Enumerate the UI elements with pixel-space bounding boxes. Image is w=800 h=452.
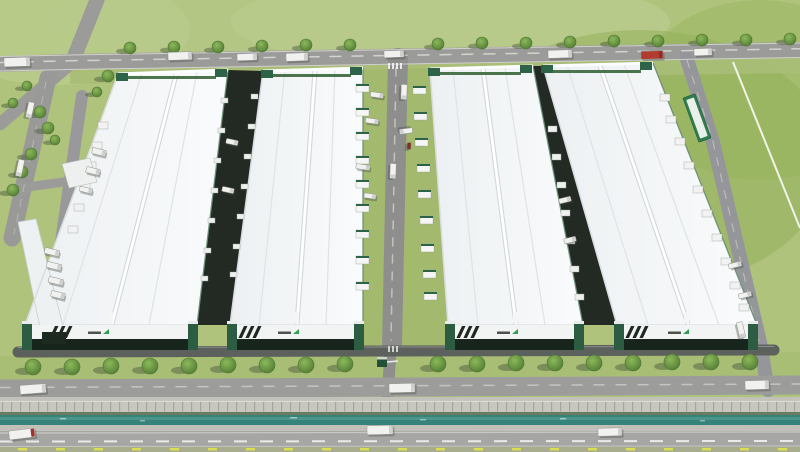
- tree: [298, 357, 314, 373]
- corner-towers: [748, 321, 758, 350]
- dock-canopy-trim: [421, 244, 434, 246]
- tower-caps: [748, 321, 758, 324]
- truck: [388, 163, 397, 180]
- yellow-edge-dashes: [626, 448, 635, 450]
- wall-posts: [605, 402, 606, 412]
- logo-text-bar: [668, 332, 681, 335]
- dock-canopy-trim: [356, 132, 369, 134]
- tree: [337, 356, 353, 372]
- canal-sparkles: [700, 420, 705, 421]
- dock-canopy: [211, 188, 218, 193]
- wall-posts: [119, 402, 120, 412]
- logo-text-bar: [497, 332, 510, 335]
- truck: [286, 53, 310, 64]
- dock-canopy: [221, 98, 228, 103]
- wall-posts: [776, 402, 777, 412]
- wall-posts: [2, 402, 3, 412]
- yellow-edge-dashes: [778, 448, 787, 450]
- truck: [745, 380, 771, 391]
- dock-canopy-trim: [356, 256, 369, 258]
- tree: [608, 35, 620, 47]
- wall-posts: [668, 402, 669, 412]
- dock-canopy: [233, 244, 240, 249]
- truck-cab: [372, 194, 376, 198]
- dock-canopy: [712, 234, 722, 241]
- truck-cab: [618, 428, 622, 435]
- yellow-edge-dashes: [208, 448, 217, 450]
- tree: [476, 37, 488, 49]
- loading-docks-central-west: [356, 84, 369, 290]
- truck-cab: [26, 58, 30, 66]
- yellow-edge-dashes: [398, 448, 407, 450]
- dock-canopy-trim: [356, 204, 369, 206]
- corner-towers: [574, 321, 584, 350]
- dock-canopy: [561, 210, 570, 216]
- wall-posts: [110, 402, 111, 412]
- wall-posts: [542, 402, 543, 412]
- tower-caps: [445, 321, 455, 324]
- tree: [7, 184, 19, 196]
- wall-posts: [614, 402, 615, 412]
- yellow-edge-dashes: [56, 448, 65, 450]
- wall-posts: [578, 402, 579, 412]
- wall-posts: [650, 402, 651, 412]
- yellow-edge-dashes: [132, 448, 141, 450]
- tree: [25, 359, 41, 375]
- dock-canopy-trim: [417, 164, 430, 166]
- logo-text-bar: [278, 332, 291, 335]
- tree: [703, 354, 719, 370]
- canal-sparkles: [420, 419, 426, 420]
- tree: [64, 359, 80, 375]
- wall-posts: [767, 402, 768, 412]
- wall-posts: [461, 402, 462, 412]
- wall-posts: [623, 402, 624, 412]
- dock-canopy-trim: [423, 270, 436, 272]
- yellow-edge-dashes: [18, 448, 787, 450]
- wall-posts: [47, 402, 48, 412]
- tower-caps: [574, 321, 584, 324]
- dock-canopy-trim: [356, 84, 369, 86]
- dock-canopy-trim: [415, 138, 428, 140]
- dock-canopy: [237, 214, 244, 219]
- dock-canopy: [208, 218, 215, 223]
- dock-canopy-trim: [356, 108, 369, 110]
- crosswalk-marks: [388, 63, 390, 69]
- wall-posts: [524, 402, 525, 412]
- corner-canopies: [520, 65, 532, 73]
- tree: [168, 41, 180, 53]
- top-hedges: [118, 76, 216, 79]
- tree: [430, 356, 446, 372]
- wall-posts: [317, 402, 318, 412]
- wall-posts: [686, 402, 687, 412]
- truck-cab: [304, 53, 308, 60]
- gate-barrier: [387, 361, 398, 362]
- tree: [142, 358, 158, 374]
- truck-cab: [568, 50, 572, 57]
- dock-canopy: [739, 304, 749, 311]
- truck: [548, 50, 574, 61]
- yellow-edge-dashes: [170, 448, 179, 450]
- truck-cab: [400, 51, 404, 57]
- dock-canopy: [218, 128, 225, 133]
- truck-cab: [379, 93, 383, 97]
- dock-canopy-trim: [356, 282, 369, 284]
- wall-posts: [596, 402, 597, 412]
- truck: [389, 383, 417, 394]
- tree: [432, 38, 444, 50]
- ridge-stacks: [108, 312, 113, 323]
- tree: [102, 70, 114, 82]
- wall-posts: [65, 402, 66, 412]
- wall-posts: [263, 402, 264, 412]
- roads: [20, 182, 64, 188]
- wall-posts: [218, 402, 219, 412]
- wall-posts: [308, 402, 309, 412]
- dock-canopy: [730, 282, 740, 289]
- dock-canopy: [204, 248, 211, 253]
- tree: [22, 81, 32, 91]
- corner-towers: [445, 321, 455, 350]
- corner-canopies: [116, 73, 128, 81]
- tower-caps: [22, 321, 32, 324]
- wall-posts: [740, 402, 741, 412]
- facade-bases: [448, 339, 583, 350]
- canal-sparkles: [560, 418, 566, 419]
- tree: [103, 358, 119, 374]
- yellow-edge-dashes: [474, 448, 483, 450]
- wall-posts: [398, 402, 399, 412]
- tree: [181, 358, 197, 374]
- tree: [50, 135, 60, 145]
- wall-posts: [749, 402, 750, 412]
- corner-canopies: [215, 69, 227, 77]
- wall-posts: [344, 402, 345, 412]
- truck-cab: [765, 381, 769, 389]
- dock-canopy-trim: [356, 180, 369, 182]
- tree: [124, 42, 136, 54]
- dock-canopy: [548, 126, 557, 132]
- wall-posts: [38, 402, 39, 412]
- wall-posts: [794, 402, 795, 412]
- wall-posts: [74, 402, 75, 412]
- wall-posts: [353, 402, 354, 412]
- wall-posts: [659, 402, 660, 412]
- corner-canopies: [640, 62, 652, 70]
- wall-posts: [371, 402, 372, 412]
- crosswalk-marks: [388, 346, 390, 352]
- wall-posts: [704, 402, 705, 412]
- tree: [25, 148, 37, 160]
- tree: [92, 87, 102, 97]
- gatehouse: [377, 357, 387, 367]
- wall-posts: [173, 402, 174, 412]
- tree: [34, 106, 46, 118]
- yellow-edge-dashes: [284, 448, 293, 450]
- truck-cab: [188, 52, 192, 59]
- truck: [399, 84, 408, 101]
- top-hedges: [263, 74, 351, 77]
- tree: [344, 39, 356, 51]
- wall-posts: [29, 402, 30, 412]
- wall-posts: [299, 402, 300, 412]
- yellow-edge-dashes: [360, 448, 369, 450]
- truck-cab: [411, 384, 415, 392]
- truck-cab: [366, 165, 370, 169]
- truck: [641, 51, 665, 62]
- ridge-stacks: [684, 312, 689, 323]
- dock-canopy-trim: [424, 292, 437, 294]
- wall-posts: [407, 402, 408, 412]
- truck-cab: [401, 95, 406, 99]
- wall-posts: [227, 402, 228, 412]
- wall-posts: [443, 402, 444, 412]
- dock-canopy: [575, 294, 584, 300]
- dock-canopy: [675, 138, 685, 145]
- ridge-stacks: [513, 312, 518, 323]
- dock-canopy: [68, 226, 78, 233]
- wall-posts: [506, 402, 507, 412]
- gatehouse: [377, 357, 387, 360]
- corner-towers: [227, 321, 237, 350]
- canal-sparkles: [140, 420, 145, 421]
- dock-canopy: [552, 154, 561, 160]
- tree: [520, 37, 532, 49]
- yellow-edge-dashes: [664, 448, 673, 450]
- wall-posts: [380, 402, 381, 412]
- wall-posts: [101, 402, 102, 412]
- crosswalk-marks: [396, 346, 398, 352]
- dock-canopy-trim: [356, 230, 369, 232]
- wall-posts: [515, 402, 516, 412]
- dock-canopy: [214, 158, 221, 163]
- tree: [564, 36, 576, 48]
- tree: [696, 34, 708, 46]
- tree: [469, 356, 485, 372]
- wall-posts: [362, 402, 363, 412]
- dock-canopy: [248, 124, 255, 129]
- wall-posts: [155, 402, 156, 412]
- outer-road-markings: [0, 446, 800, 447]
- dock-canopy: [702, 210, 712, 217]
- top-hedges: [543, 70, 641, 73]
- tree: [42, 122, 54, 134]
- wall-posts: [425, 402, 426, 412]
- truck-cab: [407, 145, 410, 149]
- wall-posts: [434, 402, 435, 412]
- wall-posts: [533, 402, 534, 412]
- tree: [220, 357, 236, 373]
- truck: [168, 52, 194, 63]
- wall-posts: [191, 402, 192, 412]
- dock-canopy: [251, 94, 258, 99]
- wall-posts: [389, 402, 390, 412]
- tree: [212, 41, 224, 53]
- yellow-edge-dashes: [550, 448, 559, 450]
- corner-canopies: [428, 68, 440, 76]
- tree: [625, 355, 641, 371]
- wall-posts: [128, 402, 129, 412]
- wall-posts: [722, 402, 723, 412]
- truck: [20, 383, 48, 396]
- gate-barrier: [387, 361, 398, 362]
- wall-posts: [200, 402, 201, 412]
- tower-caps: [614, 321, 624, 324]
- wall-posts: [497, 402, 498, 412]
- roads: [392, 58, 398, 346]
- dock-canopy: [666, 116, 676, 123]
- crosswalk-marks: [392, 346, 394, 352]
- wall-posts: [209, 402, 210, 412]
- wall-posts: [587, 402, 588, 412]
- corner-towers: [22, 321, 32, 350]
- truck-cab: [390, 174, 395, 178]
- yellow-edge-dashes: [436, 448, 445, 450]
- corner-canopies: [261, 70, 273, 78]
- truck-cab: [253, 54, 257, 60]
- tree: [586, 355, 602, 371]
- ridge-stacks: [294, 312, 299, 323]
- truck-cab: [400, 129, 404, 133]
- yellow-edge-dashes: [322, 448, 331, 450]
- yellow-edge-dashes: [512, 448, 521, 450]
- frontage-bands: [0, 425, 800, 431]
- dock-canopy: [230, 272, 237, 277]
- tree: [8, 98, 18, 108]
- wall-posts: [335, 402, 336, 412]
- dock-canopy: [693, 186, 703, 193]
- wall-posts: [146, 402, 147, 412]
- tree: [664, 354, 680, 370]
- wall-posts: [551, 402, 552, 412]
- wall-posts: [713, 402, 714, 412]
- tower-caps: [227, 321, 237, 324]
- truck-cab: [659, 51, 663, 58]
- wall-posts: [452, 402, 453, 412]
- yellow-edge-dashes: [18, 448, 27, 450]
- wall-posts: [731, 402, 732, 412]
- wall-posts: [92, 402, 93, 412]
- wall-posts: [236, 402, 237, 412]
- wall-posts: [560, 402, 561, 412]
- crosswalk-marks: [392, 63, 394, 69]
- facade-bases: [617, 339, 757, 350]
- wall-posts: [488, 402, 489, 412]
- scene-canvas: [0, 0, 800, 452]
- wall-posts: [83, 402, 84, 412]
- dock-canopy: [557, 182, 566, 188]
- tree: [740, 34, 752, 46]
- wall-posts: [470, 402, 471, 412]
- dock-canopy: [684, 162, 694, 169]
- yellow-edge-dashes: [94, 448, 103, 450]
- wall-posts: [164, 402, 165, 412]
- tree: [784, 33, 796, 45]
- truck: [237, 53, 259, 63]
- corner-towers: [188, 321, 198, 350]
- dock-canopy: [244, 154, 251, 159]
- tower-caps: [354, 321, 364, 324]
- truck: [694, 48, 714, 58]
- wall-posts: [56, 402, 57, 412]
- frontage-bands: [0, 417, 800, 420]
- dock-canopy: [660, 94, 670, 101]
- facade-bases: [230, 339, 363, 350]
- tree: [547, 355, 563, 371]
- wall-posts: [416, 402, 417, 412]
- tree: [300, 39, 312, 51]
- dock-canopy-trim: [420, 216, 433, 218]
- wall-posts: [245, 402, 246, 412]
- wall-posts: [569, 402, 570, 412]
- crosswalk-marks: [396, 63, 398, 69]
- corner-canopies: [541, 65, 553, 73]
- corner-towers: [614, 321, 624, 350]
- dock-canopy-trim: [414, 112, 427, 114]
- truck-cab: [389, 426, 393, 434]
- truck: [367, 425, 395, 436]
- tree: [259, 357, 275, 373]
- dock-canopy: [74, 204, 84, 211]
- dock-canopy-trim: [413, 86, 426, 88]
- tree: [256, 40, 268, 52]
- wall-posts: [182, 402, 183, 412]
- yellow-edge-dashes: [246, 448, 255, 450]
- truck: [384, 50, 406, 60]
- truck-cab: [708, 49, 712, 55]
- truck-cab: [374, 119, 378, 123]
- truck: [4, 57, 32, 69]
- truck: [598, 428, 624, 438]
- dock-canopy: [201, 276, 208, 281]
- yellow-edge-dashes: [588, 448, 597, 450]
- wall-posts: [326, 402, 327, 412]
- canal-sparkles: [290, 417, 297, 418]
- top-hedges: [430, 72, 521, 75]
- wall-posts: [254, 402, 255, 412]
- corner-towers: [354, 321, 364, 350]
- dock-canopy: [241, 184, 248, 189]
- wall-posts: [137, 402, 138, 412]
- aerial-render-industrial-park: [0, 0, 800, 452]
- frontage-bands: [0, 397, 800, 401]
- dock-canopy-trim: [418, 190, 431, 192]
- tree: [652, 35, 664, 47]
- dock-canopy-trim: [356, 156, 369, 158]
- wall-posts: [695, 402, 696, 412]
- wall-posts: [758, 402, 759, 412]
- dock-canopy: [570, 266, 579, 272]
- yellow-edge-dashes: [740, 448, 749, 450]
- canal-sparkles: [60, 418, 66, 419]
- wall-posts: [632, 402, 633, 412]
- wall-posts: [272, 402, 273, 412]
- wall-posts: [281, 402, 282, 412]
- wall-posts: [785, 402, 786, 412]
- dock-canopy: [98, 122, 108, 129]
- corner-canopies: [350, 67, 362, 75]
- yellow-edge-dashes: [702, 448, 711, 450]
- logo-text-bar: [88, 332, 101, 335]
- truck-cab: [42, 384, 46, 392]
- crosswalk-marks: [400, 63, 402, 69]
- wall-posts: [677, 402, 678, 412]
- tree: [742, 354, 758, 370]
- wall-posts: [641, 402, 642, 412]
- tower-caps: [188, 321, 198, 324]
- wall-posts: [290, 402, 291, 412]
